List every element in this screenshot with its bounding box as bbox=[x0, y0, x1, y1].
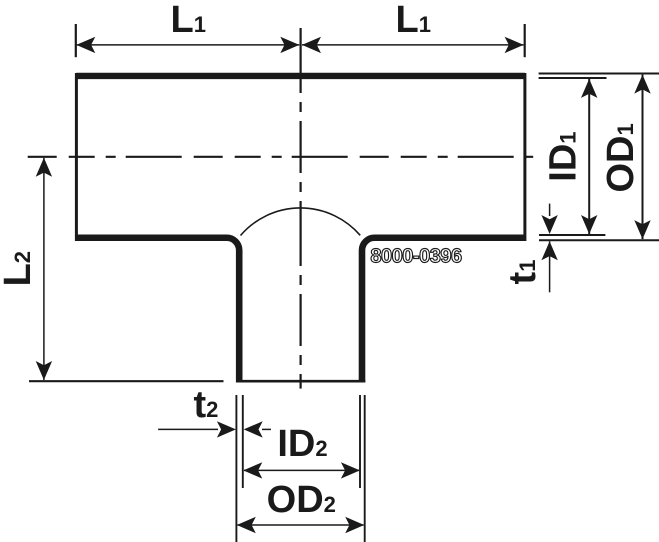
svg-text:L1: L1 bbox=[171, 0, 206, 41]
svg-text:ID1: ID1 bbox=[543, 131, 585, 181]
svg-text:t2: t2 bbox=[194, 384, 219, 426]
svg-text:ID2: ID2 bbox=[277, 423, 327, 465]
svg-text:OD1: OD1 bbox=[600, 123, 642, 192]
svg-text:t1: t1 bbox=[502, 260, 544, 285]
svg-text:L1: L1 bbox=[396, 0, 431, 41]
svg-text:L2: L2 bbox=[0, 251, 39, 286]
svg-text:OD2: OD2 bbox=[267, 479, 336, 521]
svg-text:8000-0396: 8000-0396 bbox=[370, 246, 462, 268]
